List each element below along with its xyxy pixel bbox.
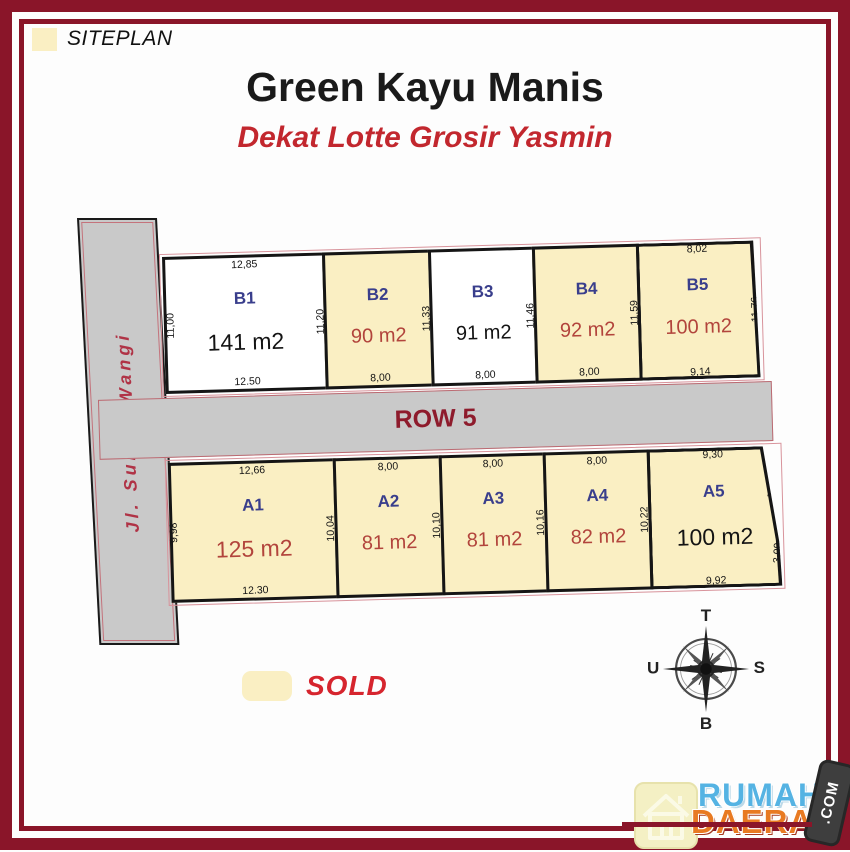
dimension-label: 8,00 [474, 369, 495, 382]
dimension-label: 8,00 [586, 454, 607, 467]
sold-label: SOLD [306, 670, 388, 702]
dimension-label: 11,20 [314, 308, 327, 334]
siteplan-label: SITEPLAN [67, 27, 173, 51]
siteplan-tag: SITEPLAN [32, 27, 173, 51]
logo-stripe [622, 822, 812, 827]
siteplan-swatch-icon [32, 28, 57, 51]
compass-top-label: T [701, 606, 711, 626]
lot-id: B5 [637, 273, 759, 296]
dimension-label: 9,14 [689, 366, 710, 379]
lot-area: 141 m2 [167, 326, 325, 357]
dimension-label: 8,00 [578, 366, 599, 379]
dimension-label: 10,16 [534, 509, 547, 536]
dimension-label: 8,00 [482, 457, 503, 470]
lot-area: 81 m2 [444, 528, 546, 554]
lot-a1: 12,66 9,98 A1 125 m2 10,04 12.30 [168, 458, 340, 603]
dimension-label: 11,33 [420, 305, 433, 331]
compass-bottom-label: B [700, 714, 712, 734]
lots-row-a: 12,66 9,98 A1 125 m2 10,04 12.30 8,00 A2… [168, 446, 783, 603]
siteplan-canvas: SITEPLAN Green Kayu Manis Dekat Lotte Gr… [0, 0, 850, 850]
lot-b3: B3 91 m2 11,46 8,00 [428, 247, 539, 387]
dimension-label: 11,46 [524, 302, 537, 328]
lot-id: A2 [337, 490, 441, 513]
dimension-label: 10,10 [430, 512, 443, 539]
lot-id: B4 [536, 278, 638, 301]
lot-id: A1 [172, 493, 334, 518]
lot-b1: 12,85 11,00 B1 141 m2 11,20 12.50 [162, 252, 329, 393]
lot-id: B1 [166, 287, 323, 311]
dimension-label: 8,00 [377, 460, 398, 473]
lots-row-b: 12,85 11,00 B1 141 m2 11,20 12.50 B2 90 … [162, 240, 762, 394]
lot-fill [639, 243, 758, 377]
sold-swatch-icon [242, 671, 292, 701]
row-5-label: ROW 5 [99, 395, 772, 443]
compass-rose: T U S B [645, 606, 767, 734]
lot-area: 100 m2 [649, 521, 782, 552]
dimension-label: 8,02 [686, 243, 707, 256]
lot-area: 82 m2 [548, 525, 650, 551]
dimension-label: 12,66 [239, 464, 266, 477]
lot-area: 100 m2 [638, 314, 760, 340]
page-subtitle: Dekat Lotte Grosir Yasmin [0, 121, 850, 155]
compass-left-label: U [647, 658, 659, 678]
dimension-label: 12.30 [242, 584, 269, 597]
lot-b2: B2 90 m2 11,33 8,00 [322, 249, 435, 389]
lot-id: B3 [432, 281, 534, 304]
lot-fill [650, 449, 780, 586]
dimension-label: 10,04 [324, 515, 337, 542]
compass-right-label: S [754, 658, 765, 678]
dimension-label: 8,00 [369, 372, 390, 385]
lot-id: B2 [326, 284, 430, 307]
plot-plan: 12,85 11,00 B1 141 m2 11,20 12.50 B2 90 … [162, 240, 767, 603]
lot-a3: 8,00 A3 81 m2 10,16 [439, 452, 550, 595]
compass-icon [662, 625, 750, 713]
lot-b5: 8,02 B5 100 m2 11,76 9,14 [636, 240, 761, 380]
page-title: Green Kayu Manis [0, 64, 850, 111]
dimension-label: 11,59 [628, 299, 641, 325]
lot-area: 92 m2 [537, 317, 639, 343]
lot-area: 81 m2 [338, 531, 442, 557]
rumah-daerah-logo: RUMAH DAERAH .COM [634, 757, 848, 850]
lot-area: 91 m2 [433, 320, 535, 346]
lot-area: 125 m2 [173, 534, 336, 566]
lot-b4: B4 92 m2 11,59 8,00 [532, 244, 643, 384]
dimension-label: 12,85 [230, 258, 257, 271]
dimension-label: 10,22 [638, 506, 651, 533]
dimension-label: 9,92 [706, 574, 727, 587]
logo-com-label: .COM [816, 780, 842, 826]
lot-a2: 8,00 A2 81 m2 10,10 [333, 455, 446, 598]
dimension-label: 9,30 [702, 448, 723, 461]
dimension-label: 3,09 [771, 542, 784, 563]
lot-a4: 8,00 A4 82 m2 10,22 [543, 449, 654, 592]
lot-id: A5 [648, 479, 781, 503]
dimension-label: 11,76 [749, 296, 762, 322]
lot-id: A4 [547, 485, 649, 508]
lot-id: A3 [443, 488, 545, 511]
lot-a5: 9,30 A5 100 m2 7,24 3,09 9,92 [647, 446, 783, 590]
house-icon [634, 782, 698, 849]
dimension-label: 12.50 [234, 375, 261, 388]
lot-area: 90 m2 [327, 323, 431, 349]
sold-legend: SOLD [242, 670, 388, 702]
